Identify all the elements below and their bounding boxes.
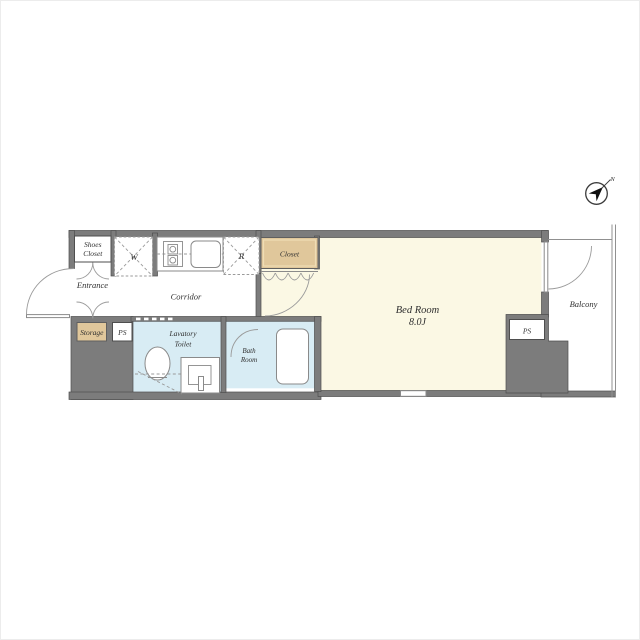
- balcony-door-swing: [549, 246, 592, 289]
- ps-left-label: PS: [117, 328, 127, 337]
- bedroom-size-label: 8.0J: [409, 317, 427, 328]
- shoes-closet-label-line2: Closet: [83, 249, 103, 258]
- east-wall-lower: [542, 292, 549, 317]
- storage-label: Storage: [80, 328, 104, 337]
- toilet-icon: [145, 347, 170, 380]
- refrigerator-label: R: [238, 251, 245, 261]
- balcony-door-leaf: [544, 242, 548, 292]
- corridor-alcove-wall: [256, 269, 261, 318]
- north-label: N: [609, 176, 615, 183]
- bedroom-window: [401, 391, 427, 397]
- vanity-sink-icon: [181, 358, 220, 394]
- entrance-door-swing: [27, 269, 75, 315]
- shoes-closet-label-line1: Shoes: [84, 240, 102, 249]
- east-wall-upper: [542, 231, 549, 243]
- floor-plan-drawing: Shoes Closet Entrance Storage PS W R Cor…: [1, 1, 640, 640]
- left-wall-upper: [69, 231, 75, 269]
- bathtub-icon: [277, 329, 309, 384]
- bath-west-wall: [221, 317, 226, 393]
- storage-doors: [77, 302, 110, 319]
- bath-label-line2: Room: [240, 356, 257, 364]
- corridor-label: Corridor: [171, 292, 202, 302]
- washer-label: W: [130, 252, 138, 262]
- sink-icon: [191, 241, 221, 268]
- entrance-door-leaf: [27, 315, 70, 318]
- closet-label: Closet: [280, 250, 300, 259]
- bath-east-wall: [315, 317, 322, 392]
- compass-icon: N: [586, 176, 616, 204]
- lavatory-label-line2: Toilet: [175, 340, 193, 349]
- bedroom-label: Bed Room: [396, 305, 440, 316]
- bath-label-line1: Bath: [242, 347, 256, 355]
- shoes-closet-doors: [77, 263, 110, 280]
- top-wall: [69, 231, 548, 238]
- balcony-label: Balcony: [570, 299, 598, 309]
- floor-plan-page: Shoes Closet Entrance Storage PS W R Cor…: [0, 0, 640, 640]
- ps-right-label: PS: [522, 327, 532, 336]
- lavatory-label-line1: Lavatory: [168, 329, 197, 338]
- entrance-label: Entrance: [76, 280, 108, 290]
